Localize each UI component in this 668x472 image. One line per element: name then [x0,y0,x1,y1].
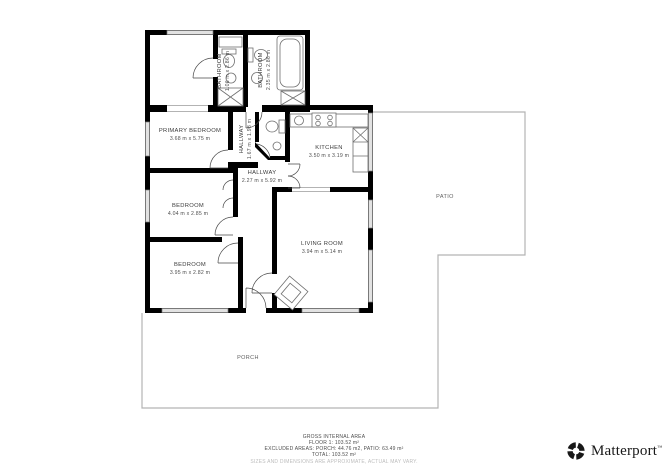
kitchen-sink-icon [295,116,304,125]
door-bedroom-bottom [218,243,238,263]
bathtub-inner-icon [280,39,300,87]
toilet-tank-icon [248,48,253,62]
window-living-right [369,250,373,302]
room-label-bathroom: BATHROOM 2.35 m x 2.86 m [258,50,272,90]
window-primary-bedroom [146,122,150,156]
floor-plan-drawing [0,0,668,472]
room-label-primary-bedroom: PRIMARY BEDROOM 3.68 m x 5.75 m [159,128,221,142]
fireplace-icon [274,276,308,310]
matterport-wordmark: Matterport™ [591,443,662,460]
room-label-hallway-small: HALLWAY 1.67 m x 1.98 m [239,119,253,159]
door-kitchen-upper [288,164,300,176]
stove-icon [312,113,336,127]
room-label-bathroom-small: BATHROOM 1.06 m x 2.86 m [217,51,231,91]
floor-plan-canvas: PRIMARY BEDROOM 3.68 m x 5.75 m BATHROOM… [0,0,668,472]
window-living-upper [369,200,373,228]
sink-icon [273,142,281,150]
window-bedroom-bottom [162,309,228,313]
room-label-hallway-main: HALLWAY 2.27 m x 5.92 m [242,170,282,184]
matterport-logo: Matterport™ [566,441,662,461]
window-top [167,31,213,35]
door-primary-bedroom [210,150,228,168]
area-label-porch: PORCH [237,355,259,361]
area-label-patio: PATIO [436,194,454,200]
room-label-bedroom-mid: BEDROOM 4.04 m x 2.85 m [168,203,208,217]
closet-bifold-doors [223,180,233,208]
trademark-symbol: ™ [657,446,662,451]
room-label-bedroom-bottom: BEDROOM 3.95 m x 2.82 m [170,262,210,276]
counter-icon [219,37,242,47]
door-kitchen-lower [288,176,300,188]
patio-door-kitchen [369,113,373,171]
window-living-bottom [302,309,359,313]
window-bedroom-mid [146,190,150,222]
door-dressing-room [193,58,213,78]
room-label-living-room: LIVING ROOM 3.94 m x 5.14 m [301,241,343,255]
room-label-kitchen: KITCHEN 3.50 m x 3.19 m [309,145,349,159]
door-bedroom-mid [215,217,233,235]
toilet-icon [266,121,278,132]
toilet-tank-icon [279,120,285,133]
door-front-entry [246,288,266,308]
matterport-logo-icon [566,441,586,461]
